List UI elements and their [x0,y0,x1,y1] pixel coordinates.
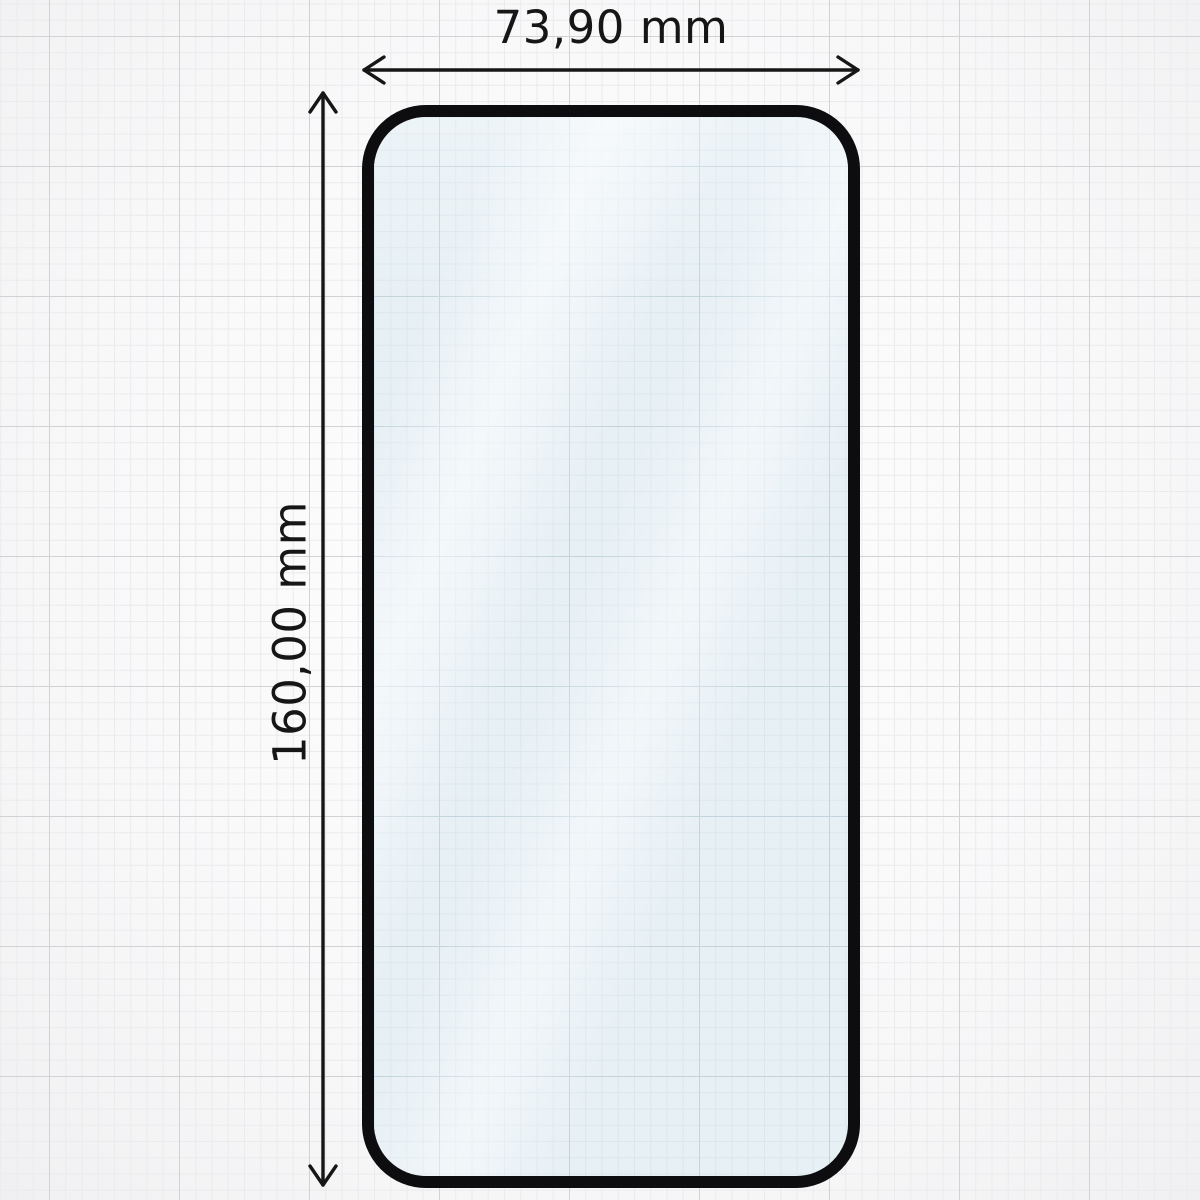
dimension-diagram: 73,90 mm 160,00 mm [0,0,1200,1200]
height-dimension-label: 160,00 mm [268,501,313,765]
width-dimension-label: 73,90 mm [362,5,860,50]
screen-protector-outline [362,105,860,1188]
glass-reflection [374,117,848,1176]
